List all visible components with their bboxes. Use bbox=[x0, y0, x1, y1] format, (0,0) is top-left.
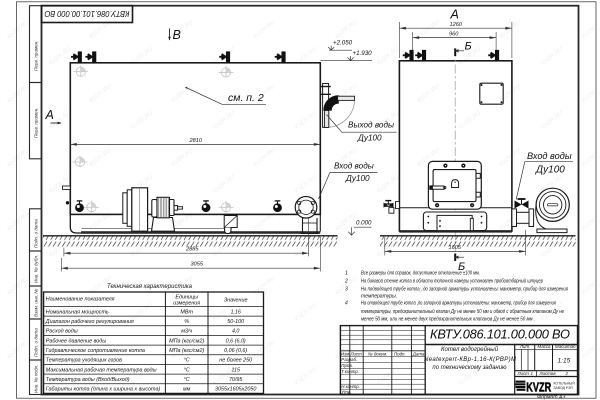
svg-text:Вход воды: Вход воды bbox=[527, 151, 572, 161]
svg-text:м3/ч: м3/ч bbox=[181, 329, 192, 335]
svg-text:Утв.: Утв. bbox=[341, 389, 351, 394]
svg-text:1260: 1260 bbox=[450, 22, 463, 28]
svg-text:°С: °С bbox=[184, 367, 190, 373]
svg-text:На отводящей трубе котла ,до з: На отводящей трубе котла ,до запорной ар… bbox=[361, 300, 556, 307]
svg-text:Гидравлическое сопротивление к: Гидравлическое сопротивление котла bbox=[46, 348, 145, 354]
svg-text:Листов: Листов bbox=[539, 371, 557, 376]
svg-text:0,6 (6,0): 0,6 (6,0) bbox=[226, 338, 246, 344]
svg-text:Н.контр.: Н.контр. bbox=[341, 384, 360, 389]
svg-text:Пров.: Пров. bbox=[341, 363, 353, 368]
svg-text:Изм.: Изм. bbox=[341, 351, 350, 356]
svg-text:Температура воды (Вход/Выход): Температура воды (Вход/Выход) bbox=[46, 377, 130, 383]
svg-text:Рабочее давление воды: Рабочее давление воды bbox=[46, 338, 106, 344]
svg-text:см. п. 2: см. п. 2 bbox=[228, 92, 264, 104]
svg-text:Вход воды: Вход воды bbox=[334, 162, 374, 171]
svg-text:Лит.: Лит. bbox=[519, 344, 530, 349]
svg-text:2810: 2810 bbox=[189, 138, 203, 144]
svg-text:2: 2 bbox=[344, 279, 348, 285]
svg-text:Габариты котла (длина х ширина: Габариты котла (длина х ширина х высота) bbox=[46, 387, 161, 393]
svg-text:Лист: Лист bbox=[517, 371, 530, 376]
svg-text:1,16: 1,16 bbox=[230, 309, 241, 315]
svg-text:Наименование показателя: Наименование показателя bbox=[46, 297, 115, 303]
svg-text:Подп. и дата: Подп. и дата bbox=[34, 219, 39, 248]
svg-text:Инв. № дубл.: Инв. № дубл. bbox=[34, 255, 39, 283]
svg-text:960: 960 bbox=[449, 31, 459, 37]
svg-text:Ду100: Ду100 bbox=[345, 174, 370, 183]
svg-text:ЗАВОД РЭП: ЗАВОД РЭП bbox=[554, 386, 574, 390]
svg-text:0,06 (0,6): 0,06 (0,6) bbox=[224, 348, 247, 354]
svg-text:Ду100: Ду100 bbox=[535, 165, 565, 176]
svg-text:Диапазон рабочего регулировани: Диапазон рабочего регулирования bbox=[45, 319, 134, 325]
svg-text:2885: 2885 bbox=[185, 247, 199, 253]
svg-text:1: 1 bbox=[345, 271, 348, 277]
svg-text:МВт: МВт bbox=[180, 309, 193, 315]
svg-text:температуры.: температуры. bbox=[361, 294, 397, 300]
svg-text:№ докум.: № докум. bbox=[368, 351, 387, 356]
svg-text:В: В bbox=[173, 28, 181, 42]
svg-text:Температура уходящих газов: Температура уходящих газов bbox=[46, 358, 122, 364]
svg-text:Значение: Значение bbox=[224, 298, 248, 304]
svg-text:Номинальная мощность: Номинальная мощность bbox=[46, 309, 109, 315]
svg-text:115: 115 bbox=[231, 367, 241, 373]
svg-text:4: 4 bbox=[345, 301, 348, 307]
svg-text:4,0: 4,0 bbox=[232, 329, 240, 335]
svg-text:Масштаб: Масштаб bbox=[555, 344, 576, 349]
svg-text:Формат А3: Формат А3 bbox=[537, 394, 565, 400]
svg-text:+1.930: +1.930 bbox=[353, 50, 373, 57]
svg-text:менее 50 мм, или не менее дву: менее 50 мм, или не менее двух предохран… bbox=[361, 317, 535, 323]
svg-text:Все размеры для справок, допус: Все размеры для справок, допустимое откл… bbox=[361, 271, 480, 277]
svg-text:Лист: Лист bbox=[350, 351, 363, 356]
svg-text:1605: 1605 bbox=[449, 245, 462, 251]
svg-text:Ду100: Ду100 bbox=[357, 134, 382, 143]
svg-text:1:15: 1:15 bbox=[558, 357, 571, 364]
svg-text:Максимальная рабочая температу: Максимальная рабочая температура воды bbox=[46, 367, 157, 373]
svg-text:3055х1605х2050: 3055х1605х2050 bbox=[215, 387, 256, 393]
svg-text:+2.050: +2.050 bbox=[333, 40, 353, 47]
svg-text:КВТУ.086.101.00.000 ВО: КВТУ.086.101.00.000 ВО bbox=[430, 327, 570, 342]
svg-text:Масса: Масса bbox=[538, 344, 552, 349]
svg-text:3055: 3055 bbox=[191, 262, 204, 268]
svg-text:°С: °С bbox=[184, 358, 190, 364]
svg-text:Техническая характеристика: Техническая характеристика bbox=[107, 284, 193, 290]
svg-text:по техническому заданию: по техническому заданию bbox=[432, 365, 507, 371]
svg-text:Инв. № подл.: Инв. № подл. bbox=[34, 364, 39, 393]
svg-text:КВТУ.086.101.00.000 ВО: КВТУ.086.101.00.000 ВО bbox=[44, 9, 129, 19]
svg-text:0.000: 0.000 bbox=[356, 220, 372, 227]
svg-text:Выход воды: Выход воды bbox=[348, 120, 394, 129]
svg-text:МПа (кгс/см2): МПа (кгс/см2) bbox=[169, 338, 204, 344]
svg-text:70/95: 70/95 bbox=[229, 377, 243, 383]
svg-text:Взам. инв. №: Взам. инв. № bbox=[34, 289, 39, 317]
svg-text:KVZR: KVZR bbox=[526, 380, 551, 394]
svg-text:Б: Б bbox=[465, 41, 472, 53]
svg-text:На боковой стенке котла в обла: На боковой стенке котла в области топочн… bbox=[361, 278, 543, 285]
svg-text:°С: °С bbox=[184, 377, 190, 383]
svg-text:Перв. примен.: Перв. примен. bbox=[34, 107, 39, 138]
svg-text:3: 3 bbox=[345, 287, 348, 293]
svg-text:50-100: 50-100 bbox=[227, 319, 244, 325]
svg-text:А: А bbox=[450, 8, 459, 22]
svg-text:мм: мм bbox=[183, 387, 191, 393]
svg-text:измерения: измерения bbox=[173, 300, 200, 306]
svg-text:Перв. примен.: Перв. примен. bbox=[34, 40, 39, 71]
svg-text:Расход воды: Расход воды bbox=[46, 329, 78, 335]
svg-text:А: А bbox=[45, 108, 54, 122]
svg-text:Подп.: Подп. bbox=[394, 351, 406, 356]
svg-text:Т.контр.: Т.контр. bbox=[341, 369, 359, 374]
svg-text:Котел водогрейный: Котел водогрейный bbox=[441, 346, 499, 353]
svg-text:%: % bbox=[184, 319, 189, 325]
svg-text:не более 250: не более 250 bbox=[219, 358, 252, 364]
svg-text:2: 2 bbox=[565, 371, 569, 376]
svg-text:Разраб.: Разраб. bbox=[341, 357, 357, 362]
svg-text:температуры, предохранительный: температуры, предохранительный клапан Ду… bbox=[361, 308, 564, 315]
svg-text:Подп. и дата: Подп. и дата bbox=[34, 328, 39, 357]
svg-text:Neatexpert-КВр-1,16-К(РВР)М: Neatexpert-КВр-1,16-К(РВР)М bbox=[424, 357, 516, 363]
svg-text:Дата: Дата bbox=[412, 351, 425, 356]
svg-text:МПа (кгс/см2): МПа (кгс/см2) bbox=[169, 348, 204, 354]
svg-text:На подводящей трубе котла ,: На подводящей трубе котла , до запорной … bbox=[361, 286, 568, 293]
